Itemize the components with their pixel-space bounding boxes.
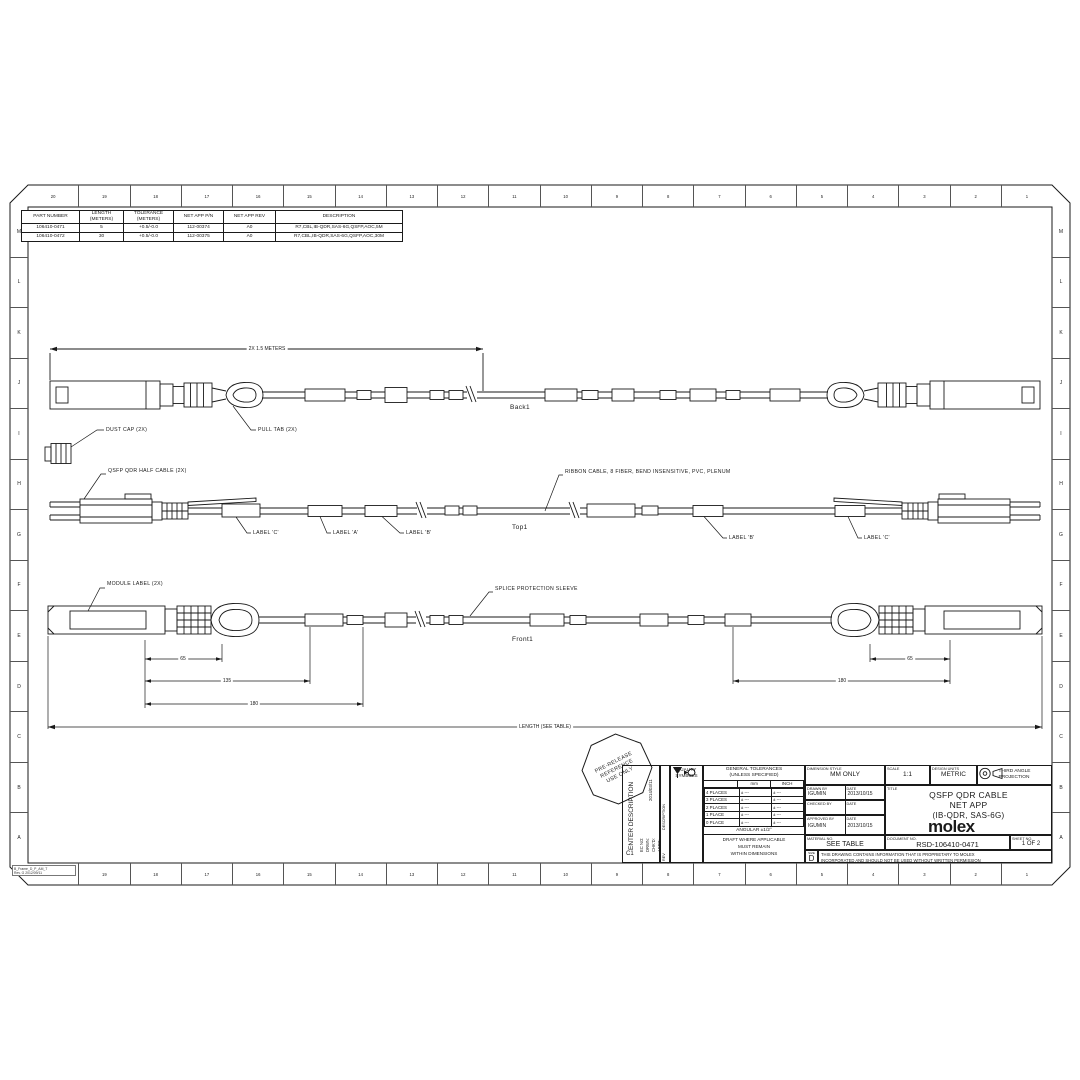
- revision-date: 2014/03/11: [648, 779, 653, 801]
- tolerances-title-2: (UNLESS SPECIFIED): [704, 773, 804, 779]
- border-number-cell: 1: [1001, 863, 1052, 885]
- approved-by-box: APPROVED BY IGUMIN DATE 2013/10/15: [805, 815, 885, 835]
- splice-sleeve-callout: SPLICE PROTECTION SLEEVE: [494, 586, 579, 592]
- tolerance-cell: +0.5/-0.0: [124, 233, 174, 242]
- top-view-drawing: [50, 474, 1040, 538]
- revision-enter-description: ENTER DESCRIPTION: [628, 782, 635, 850]
- length-cell: 30: [80, 233, 124, 242]
- border-letter-cell: I: [10, 408, 28, 459]
- draft-note-2: MUST REMAIN: [704, 844, 804, 851]
- part-number-cell: 106410-0471: [22, 224, 80, 233]
- drawn-date-value: 2013/10/15: [846, 791, 885, 797]
- border-number-cell: 1: [1001, 185, 1052, 207]
- length-dimension-label: LENGTH (SEE TABLE): [517, 724, 573, 730]
- tolerance-row: 0 PLACE ± --- ± ---: [705, 819, 804, 827]
- tolerance-row: 1 PLACE ± --- ± ---: [705, 811, 804, 819]
- checked-date-label: DATE: [846, 801, 885, 806]
- approved-date-value: 2013/10/15: [846, 821, 885, 829]
- third-angle-projection-icon: [978, 766, 1004, 781]
- border-letter-cell: H: [10, 459, 28, 510]
- drawn-by-box: DRAWN BY IGUMIN DATE 2013/10/15: [805, 785, 885, 800]
- col-tolerance: TOLERANCE(METERS): [124, 211, 174, 224]
- border-letter-cell: G: [10, 509, 28, 560]
- border-number-cell: 15: [283, 863, 334, 885]
- border-number-cell: 10: [540, 185, 591, 207]
- border-number-cell: 19: [78, 863, 129, 885]
- dim-65-left: 65: [178, 656, 188, 662]
- col-net-app-rev: NET APP REV: [224, 211, 276, 224]
- label-b-callout: LABEL 'B': [405, 530, 433, 536]
- border-letter-cell: L: [1052, 257, 1070, 308]
- border-number-cell: 14: [335, 185, 386, 207]
- front-view-drawing: [48, 588, 1042, 729]
- border-letter-cell: D: [10, 661, 28, 712]
- document-no-box: DOCUMENT NO. RSD-106410-0471: [885, 835, 1010, 850]
- border-left-letters: MLKJIHGFEDCBA: [10, 207, 28, 863]
- border-number-cell: 12: [437, 863, 488, 885]
- label-c-callout: LABEL 'C': [252, 530, 280, 536]
- border-letter-cell: F: [1052, 560, 1070, 611]
- border-number-cell: 11: [488, 185, 539, 207]
- dust-cap-callout: DUST CAP (2X): [105, 427, 148, 433]
- projection-box: THIRD ANGLE PROJECTION: [977, 765, 1052, 785]
- sheet-no-box: SHEET NO. 1 OF 2: [1010, 835, 1052, 850]
- border-number-cell: 14: [335, 863, 386, 885]
- checked-by-label: CHECKED BY: [806, 801, 845, 806]
- parts-table-header-row: PART NUMBER LENGTH(METERS) TOLERANCE(MET…: [22, 211, 403, 224]
- border-number-cell: 10: [540, 863, 591, 885]
- title-box: TITLE QSFP QDR CABLE NET APP (IB-QDR, SA…: [885, 785, 1052, 835]
- border-letter-cell: M: [1052, 207, 1070, 257]
- border-number-cell: 2: [950, 863, 1001, 885]
- label-a-callout: LABEL 'A': [332, 530, 360, 536]
- dim-135-left: 135: [221, 678, 233, 684]
- border-letter-cell: K: [10, 307, 28, 358]
- border-number-cell: 12: [437, 185, 488, 207]
- tol-col-mm: mm: [738, 780, 771, 788]
- description-cell: R7,CBL,IB-QDR,SAS-6G,QSFP,AOC,5M: [276, 224, 403, 233]
- net-app-rev-cell: A0: [224, 233, 276, 242]
- border-number-cell: 13: [386, 863, 437, 885]
- border-letter-cell: F: [10, 560, 28, 611]
- drawn-by-value: IGUMIN: [806, 791, 845, 797]
- dimension-style-box: DIMENSION STYLE MM ONLY: [805, 765, 885, 785]
- border-letter-cell: L: [10, 257, 28, 308]
- border-letter-cell: H: [1052, 459, 1070, 510]
- border-number-cell: 7: [693, 863, 744, 885]
- dim-65-right: 65: [905, 656, 915, 662]
- draft-note-1: DRAFT WHERE APPLICABLE: [704, 837, 804, 844]
- border-letter-cell: J: [1052, 358, 1070, 409]
- description-cell: R7,CBL,IB-QDR,SAS-6G,QSFP,AOC,30M: [276, 233, 403, 242]
- border-number-cell: 7: [693, 185, 744, 207]
- col-part-number: PART NUMBER: [22, 211, 80, 224]
- part-number-cell: 106410-0472: [22, 233, 80, 242]
- revision-field-drwn: DRWN:: [645, 838, 650, 852]
- label-b-right-callout: LABEL 'B': [728, 535, 756, 541]
- tolerance-cell: +0.5/-0.0: [124, 224, 174, 233]
- border-number-cell: 11: [488, 863, 539, 885]
- border-letter-cell: K: [1052, 307, 1070, 358]
- border-number-cell: 3: [898, 185, 949, 207]
- scale-box: SCALE 1:1: [885, 765, 930, 785]
- border-letter-cell: B: [10, 762, 28, 813]
- border-letter-cell: A: [10, 812, 28, 863]
- net-app-rev-cell: A0: [224, 224, 276, 233]
- tolerance-row: 4 PLACES ± --- ± ---: [705, 789, 804, 797]
- border-number-cell: 8: [642, 863, 693, 885]
- border-number-cell: 13: [386, 185, 437, 207]
- tolerances-unit-header-row: mm INCH: [704, 780, 804, 788]
- border-letter-cell: G: [1052, 509, 1070, 560]
- col-length: LENGTH(METERS): [80, 211, 124, 224]
- scale-value: 1:1: [886, 771, 929, 778]
- border-letter-cell: A: [1052, 812, 1070, 863]
- col-net-app-pn: NET APP P/N: [174, 211, 224, 224]
- size-value: D: [806, 855, 817, 863]
- tolerance-row: 2 PLACES ± --- ± ---: [705, 804, 804, 812]
- proprietary-line-2: INCORPORATED AND SHOULD NOT BE USED WITH…: [821, 858, 1049, 864]
- top-view-label: Top1: [512, 524, 528, 531]
- molex-logo: molex: [928, 817, 975, 837]
- border-number-cell: 18: [130, 863, 181, 885]
- border-number-cell: 17: [181, 185, 232, 207]
- border-top-numbers: 2019181716151413121110987654321: [28, 185, 1052, 207]
- back-view-label: Back1: [510, 404, 530, 411]
- tolerances-table: mm INCH: [704, 780, 804, 789]
- length-cell: 5: [80, 224, 124, 233]
- sheet-format-note: B_Frame_D_P_AM_T Rev. G 2012/09/11: [12, 865, 76, 876]
- border-letter-cell: C: [1052, 711, 1070, 762]
- material-no-value: SEE TABLE: [806, 841, 884, 849]
- border-letter-cell: B: [1052, 762, 1070, 813]
- material-no-box: MATERIAL NO. SEE TABLE: [805, 835, 885, 850]
- border-number-cell: 18: [130, 185, 181, 207]
- border-bottom-numbers: 19181716151413121110987654321: [28, 863, 1052, 885]
- pull-tab-callout: PULL TAB (2X): [257, 427, 298, 433]
- border-right-letters: MLKJIHGFEDCBA: [1052, 207, 1070, 863]
- revision-field-ec-no: EC NO:: [639, 838, 644, 852]
- title-line-2: NET APP: [886, 801, 1051, 811]
- revision-value: C1: [626, 851, 634, 857]
- ribbon-cable-callout: RIBBON CABLE, 8 FIBER, BEND INSENSITIVE,…: [564, 469, 732, 475]
- angular-tolerance: ANGULAR ±1/2°: [704, 827, 804, 836]
- border-letter-cell: E: [10, 610, 28, 661]
- dim-180-left: 180: [248, 701, 260, 707]
- border-letter-cell: I: [1052, 408, 1070, 459]
- border-number-cell: 16: [232, 863, 283, 885]
- border-letter-cell: J: [10, 358, 28, 409]
- border-number-cell: 6: [745, 185, 796, 207]
- quality-symbols-box: QUALITY SYMBOLS: [670, 765, 703, 863]
- front-view-label: Front1: [512, 636, 533, 643]
- border-number-cell: 19: [78, 185, 129, 207]
- border-number-cell: 4: [847, 863, 898, 885]
- back-dimension-label: 2X 1.5 METERS: [247, 346, 288, 352]
- border-number-cell: 17: [181, 863, 232, 885]
- document-no-value: RSD-106410-0471: [886, 841, 1009, 849]
- design-units-value: METRIC: [931, 771, 976, 778]
- revision-field-chkd: CHK'D:: [651, 838, 656, 852]
- border-number-cell: 15: [283, 185, 334, 207]
- net-app-pn-cell: 112-00374: [174, 224, 224, 233]
- dim-180-right: 180: [836, 678, 848, 684]
- parts-table-row: 106410-0472 30 +0.5/-0.0 112-00375 A0 R7…: [22, 233, 403, 242]
- tolerances-rows: 4 PLACES ± --- ± --- 3 PLACES ± --- ± --…: [704, 788, 804, 827]
- draft-note-3: WITHIN DIMENSIONS: [704, 851, 804, 858]
- border-number-cell: 8: [642, 185, 693, 207]
- revision-rev-label: REV: [662, 853, 666, 861]
- back-view-drawing: [45, 347, 1040, 464]
- border-number-cell: 3: [898, 863, 949, 885]
- approved-by-value: IGUMIN: [806, 821, 845, 829]
- border-number-cell: 16: [232, 185, 283, 207]
- tolerance-row: 3 PLACES ± --- ± ---: [705, 796, 804, 804]
- revision-description-label: DESCRIPTION: [662, 804, 666, 830]
- engineering-drawing-sheet: PRE-RELEASE REFERENCE USE ONLY 201918171…: [0, 0, 1080, 1080]
- parts-table: PART NUMBER LENGTH(METERS) TOLERANCE(MET…: [21, 210, 403, 242]
- module-label-callout: MODULE LABEL (2X): [106, 581, 164, 587]
- border-number-cell: 2: [950, 185, 1001, 207]
- checked-by-box: CHECKED BY DATE: [805, 800, 885, 815]
- tol-col-inch: INCH: [771, 780, 804, 788]
- border-number-cell: 6: [745, 863, 796, 885]
- border-number-cell: 5: [796, 863, 847, 885]
- parts-table-row: 106410-0471 5 +0.5/-0.0 112-00374 A0 R7,…: [22, 224, 403, 233]
- quality-symbol-icon: [671, 766, 697, 779]
- border-number-cell: 9: [591, 863, 642, 885]
- border-letter-cell: C: [10, 711, 28, 762]
- border-number-cell: 9: [591, 185, 642, 207]
- net-app-pn-cell: 112-00375: [174, 233, 224, 242]
- size-box: SIZE D: [805, 850, 818, 863]
- border-letter-cell: E: [1052, 610, 1070, 661]
- half-cable-callout: QSFP QDR HALF CABLE (2X): [107, 468, 188, 474]
- drawing-geometry: [0, 0, 1080, 1080]
- dust-cap-drawing: [45, 444, 71, 464]
- border-number-cell: 20: [28, 185, 78, 207]
- label-c-right-callout: LABEL 'C': [863, 535, 891, 541]
- border-letter-cell: D: [1052, 661, 1070, 712]
- sheet-no-value: 1 OF 2: [1011, 841, 1051, 848]
- border-number-cell: 4: [847, 185, 898, 207]
- border-number-cell: 5: [796, 185, 847, 207]
- proprietary-note-box: THIS DRAWING CONTAINS INFORMATION THAT I…: [818, 850, 1052, 863]
- col-description: DESCRIPTION: [276, 211, 403, 224]
- dimension-style-value: MM ONLY: [806, 771, 884, 778]
- revision-field-appr: APPR:: [657, 839, 662, 852]
- general-tolerances-box: GENERAL TOLERANCES (UNLESS SPECIFIED) mm…: [703, 765, 805, 863]
- design-units-box: DESIGN UNITS METRIC: [930, 765, 977, 785]
